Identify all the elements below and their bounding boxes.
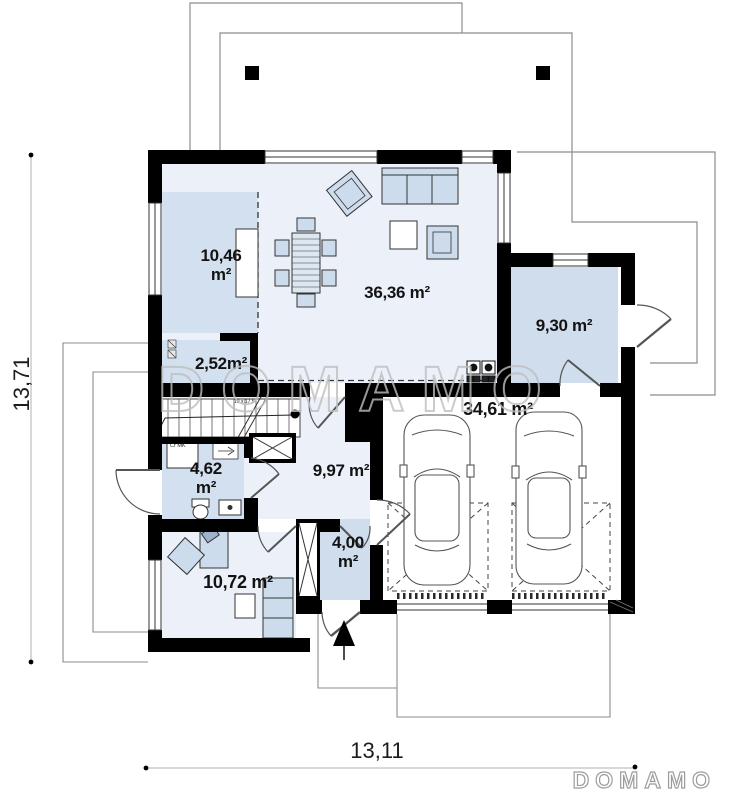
appliance-icon	[213, 443, 238, 459]
roof-columns	[245, 66, 550, 80]
toilet-icon	[192, 499, 209, 519]
sofa-icon	[382, 168, 458, 204]
entrance-arrow-icon	[333, 620, 355, 660]
stairs-note: 19 x 17,5	[234, 399, 255, 405]
room-label-living-dining: 36,36 m²	[352, 283, 442, 302]
room-label-bedroom: 10,72 m²	[196, 572, 280, 592]
room-label-pantry: 2,52m²	[192, 354, 250, 373]
coffee-table-icon	[390, 221, 417, 249]
dimension-label-width: 13,11	[332, 738, 422, 764]
wardrobe-icon	[296, 519, 320, 600]
room-label-bathroom: 4,62 m²	[177, 459, 235, 497]
garage-doors	[397, 596, 633, 612]
room-label-utility: 9,30 m²	[528, 316, 600, 335]
car-icon	[400, 415, 474, 585]
room-label-hall: 9,97 m²	[306, 461, 376, 480]
dimension-line-bottom	[144, 765, 638, 771]
washer-label: Cr MK	[170, 443, 186, 449]
car-icon	[512, 412, 586, 584]
room-label-garage: 34,61 m²	[456, 399, 540, 419]
dimension-label-height: 13,71	[9, 347, 33, 421]
floor-plan-drawing	[0, 0, 730, 800]
room-label-kitchen: 10,46 m²	[190, 246, 252, 284]
armchair-icon	[427, 226, 458, 259]
brand-logo: DOMAMO	[573, 767, 716, 794]
room-label-vestibule: 4,00 m²	[322, 533, 374, 571]
floor-plan-page: 36,36 m² 10,46 m² 2,52m² 9,30 m² 4,62 m²…	[0, 0, 730, 800]
side-table-icon	[235, 594, 255, 618]
sink-icon	[219, 500, 241, 515]
